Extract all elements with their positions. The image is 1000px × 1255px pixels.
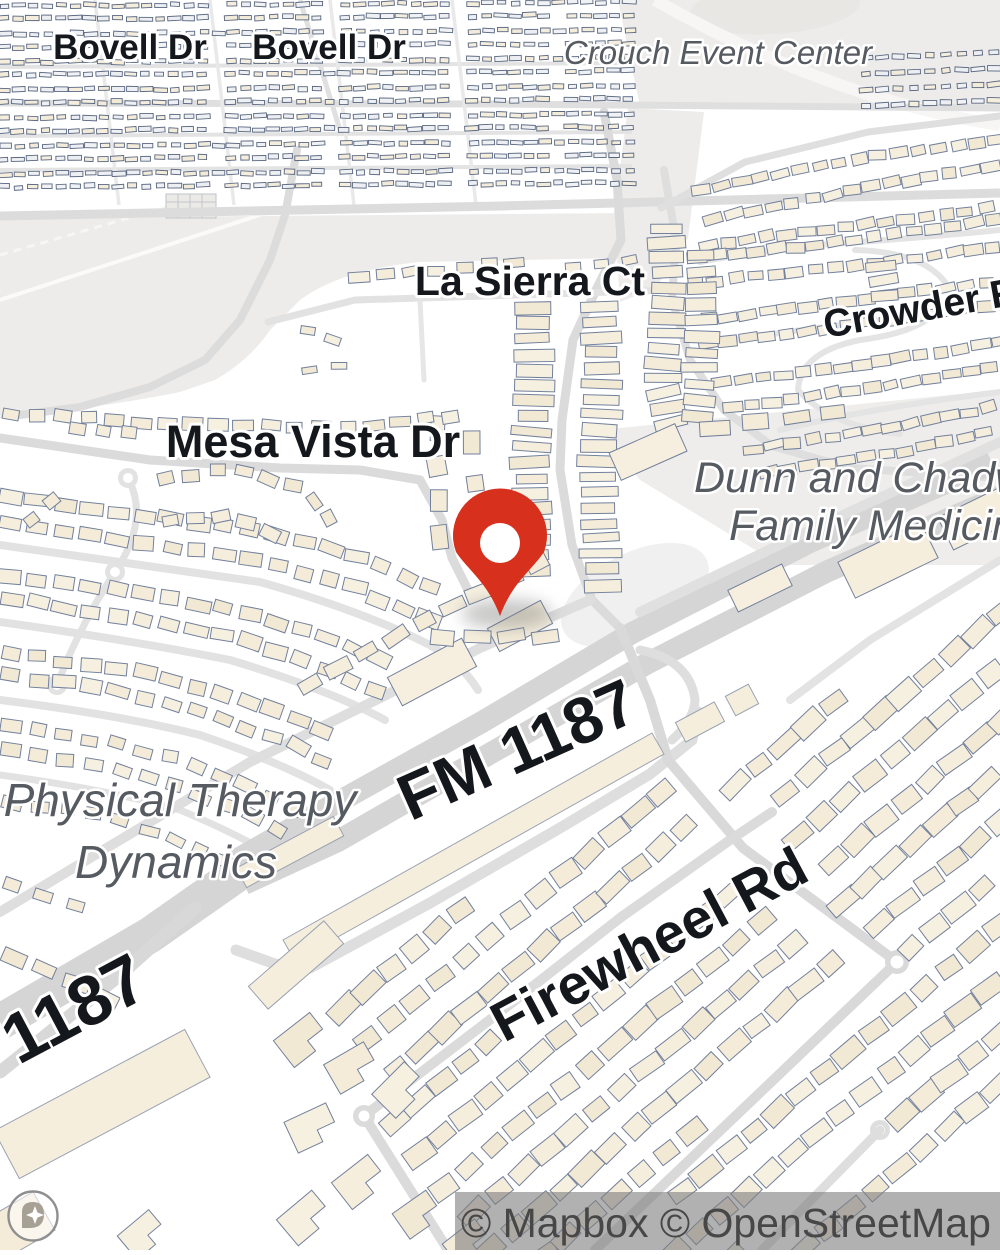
svg-text:La Sierra Ct: La Sierra Ct (415, 258, 645, 304)
svg-text:Crouch Event Center: Crouch Event Center (564, 34, 874, 71)
svg-text:Family Medicine: Family Medicine (729, 502, 1000, 550)
svg-text:Bovell Dr: Bovell Dr (252, 28, 406, 67)
svg-text:Physical Therapy: Physical Therapy (4, 774, 360, 826)
svg-text:Dunn and Chadwick: Dunn and Chadwick (694, 454, 1000, 502)
svg-text:Bovell Dr: Bovell Dr (53, 28, 207, 67)
svg-text:Mesa Vista Dr: Mesa Vista Dr (166, 416, 460, 467)
svg-text:Dynamics: Dynamics (75, 836, 277, 888)
svg-text:© Mapbox © OpenStreetMap: © Mapbox © OpenStreetMap (461, 1200, 991, 1246)
